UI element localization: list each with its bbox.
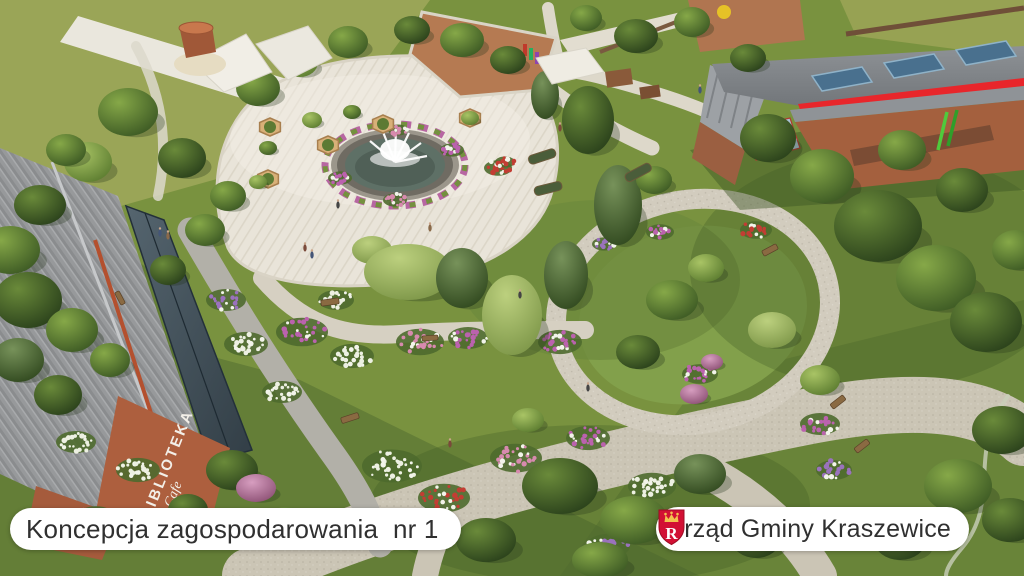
office-caption-pill: R Urząd Gminy Kraszewice — [656, 507, 969, 551]
concept-slide: BIBLIOTEKA Cafe Koncepcja zagospodarowan… — [0, 0, 1024, 576]
concept-caption-pill: Koncepcja zagospodarowania nr 1 — [10, 508, 461, 550]
crest-crown — [664, 512, 679, 523]
concept-label: Koncepcja zagospodarowania nr 1 — [26, 514, 439, 545]
crest-letter: R — [665, 524, 678, 543]
office-label: Urząd Gminy Kraszewice — [666, 515, 951, 544]
park-aerial-rendering: BIBLIOTEKA Cafe — [0, 0, 1024, 576]
kraszewice-crest-icon: R — [656, 507, 687, 547]
slide-equipment — [717, 5, 731, 19]
